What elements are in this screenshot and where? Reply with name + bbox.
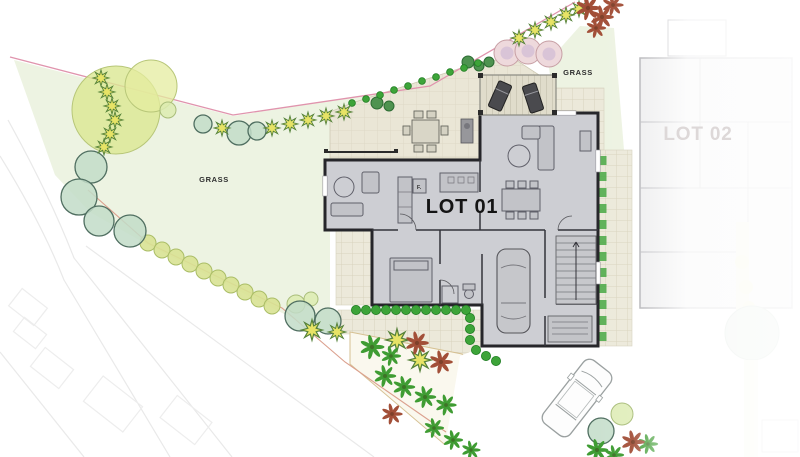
toilet [465,290,474,299]
site-plan-svg: GRASS GRASS F. LOT 01 LOT 02 [0,0,800,457]
hedge-dot [433,74,440,81]
shrub-star [527,22,543,38]
bush-green [371,97,383,109]
shrub-star [302,320,323,341]
site-plan: GRASS GRASS F. LOT 01 LOT 02 [0,0,800,457]
hedge-dot [431,305,440,314]
shrub-star [543,14,559,30]
hedge-dot [377,92,384,99]
grass-label-left: GRASS [199,175,229,184]
shrub-star [300,112,316,128]
shrub-star [328,323,346,341]
hedge-dot [391,87,398,94]
kitchen-counter [398,177,412,223]
entry-steps [548,316,592,342]
grass-label-right: GRASS [563,68,593,77]
stairs [556,236,596,304]
shrub-star [282,116,298,132]
bed-pillows [394,261,428,270]
hedge-dot [351,305,360,314]
tree-teal [248,122,266,140]
outdoor-table [412,120,439,143]
hedge-dot [401,305,410,314]
shrub-star [96,139,112,155]
tree-pink-center [501,47,514,60]
hedge-yellow [237,284,253,300]
kitchen-island [440,173,478,192]
pergola-deck [478,73,557,115]
hedge-dot [363,96,370,103]
tree-light [160,102,176,118]
hedge-dot [491,356,500,365]
shrub-star [409,349,431,371]
shrub-star [214,120,230,136]
tree-pink-center [543,48,556,61]
lot02-label: LOT 02 [663,124,732,145]
hedge-dot [349,100,356,107]
hedge-dot [451,305,460,314]
hedge-dot [381,305,390,314]
tree-teal [114,215,146,247]
hedge-dot [371,305,380,314]
tree-teal [194,115,212,133]
tree-teal [227,121,251,145]
hedge-yellow [264,298,280,314]
hedge-dot [471,345,480,354]
dining-table [502,189,540,211]
hedge-dot [421,305,430,314]
hedge-dot [461,65,468,72]
tree-pink-center [522,45,535,58]
bush-green [484,57,494,67]
sofa [522,126,540,139]
hedge-dot [441,305,450,314]
hedge-dot [481,351,490,360]
tree-teal [84,206,114,236]
cabinet [580,131,591,151]
hedge-dot [419,78,426,85]
hedge-dot [465,335,474,344]
hedge-dot [405,83,412,90]
side-path [336,230,372,305]
hedge-yellow [182,256,198,272]
bush-green [384,101,394,111]
lot02-fade-overlay [595,0,800,457]
armchair [362,172,379,193]
tree-teal [75,151,107,183]
hedge-yellow [154,242,170,258]
toilet-tank [463,284,475,290]
hedge-dot [447,69,454,76]
bbq [461,119,473,143]
hedge-dot [465,313,474,322]
neighbor-lot-outlines [9,288,212,444]
hedge-dot [361,305,370,314]
sofa [331,203,363,216]
hedge-yellow [196,263,212,279]
hedge-dot [391,305,400,314]
hedge-dot [475,60,482,67]
shrub-star [318,108,334,124]
shrub-star [264,120,280,136]
shrub-star [336,104,352,120]
hedge-dot [465,324,474,333]
hedge-yellow [168,249,184,265]
shrub-star [104,98,120,114]
lot01-label: LOT 01 [426,196,499,218]
hedge-yellow [223,277,239,293]
shrub-star [511,30,527,46]
shrub-star [93,70,109,86]
hedge-dot [411,305,420,314]
shrub-star [99,84,115,100]
fridge-label: F. [417,185,422,191]
shrub-star [107,112,123,128]
garage-car [497,249,530,333]
